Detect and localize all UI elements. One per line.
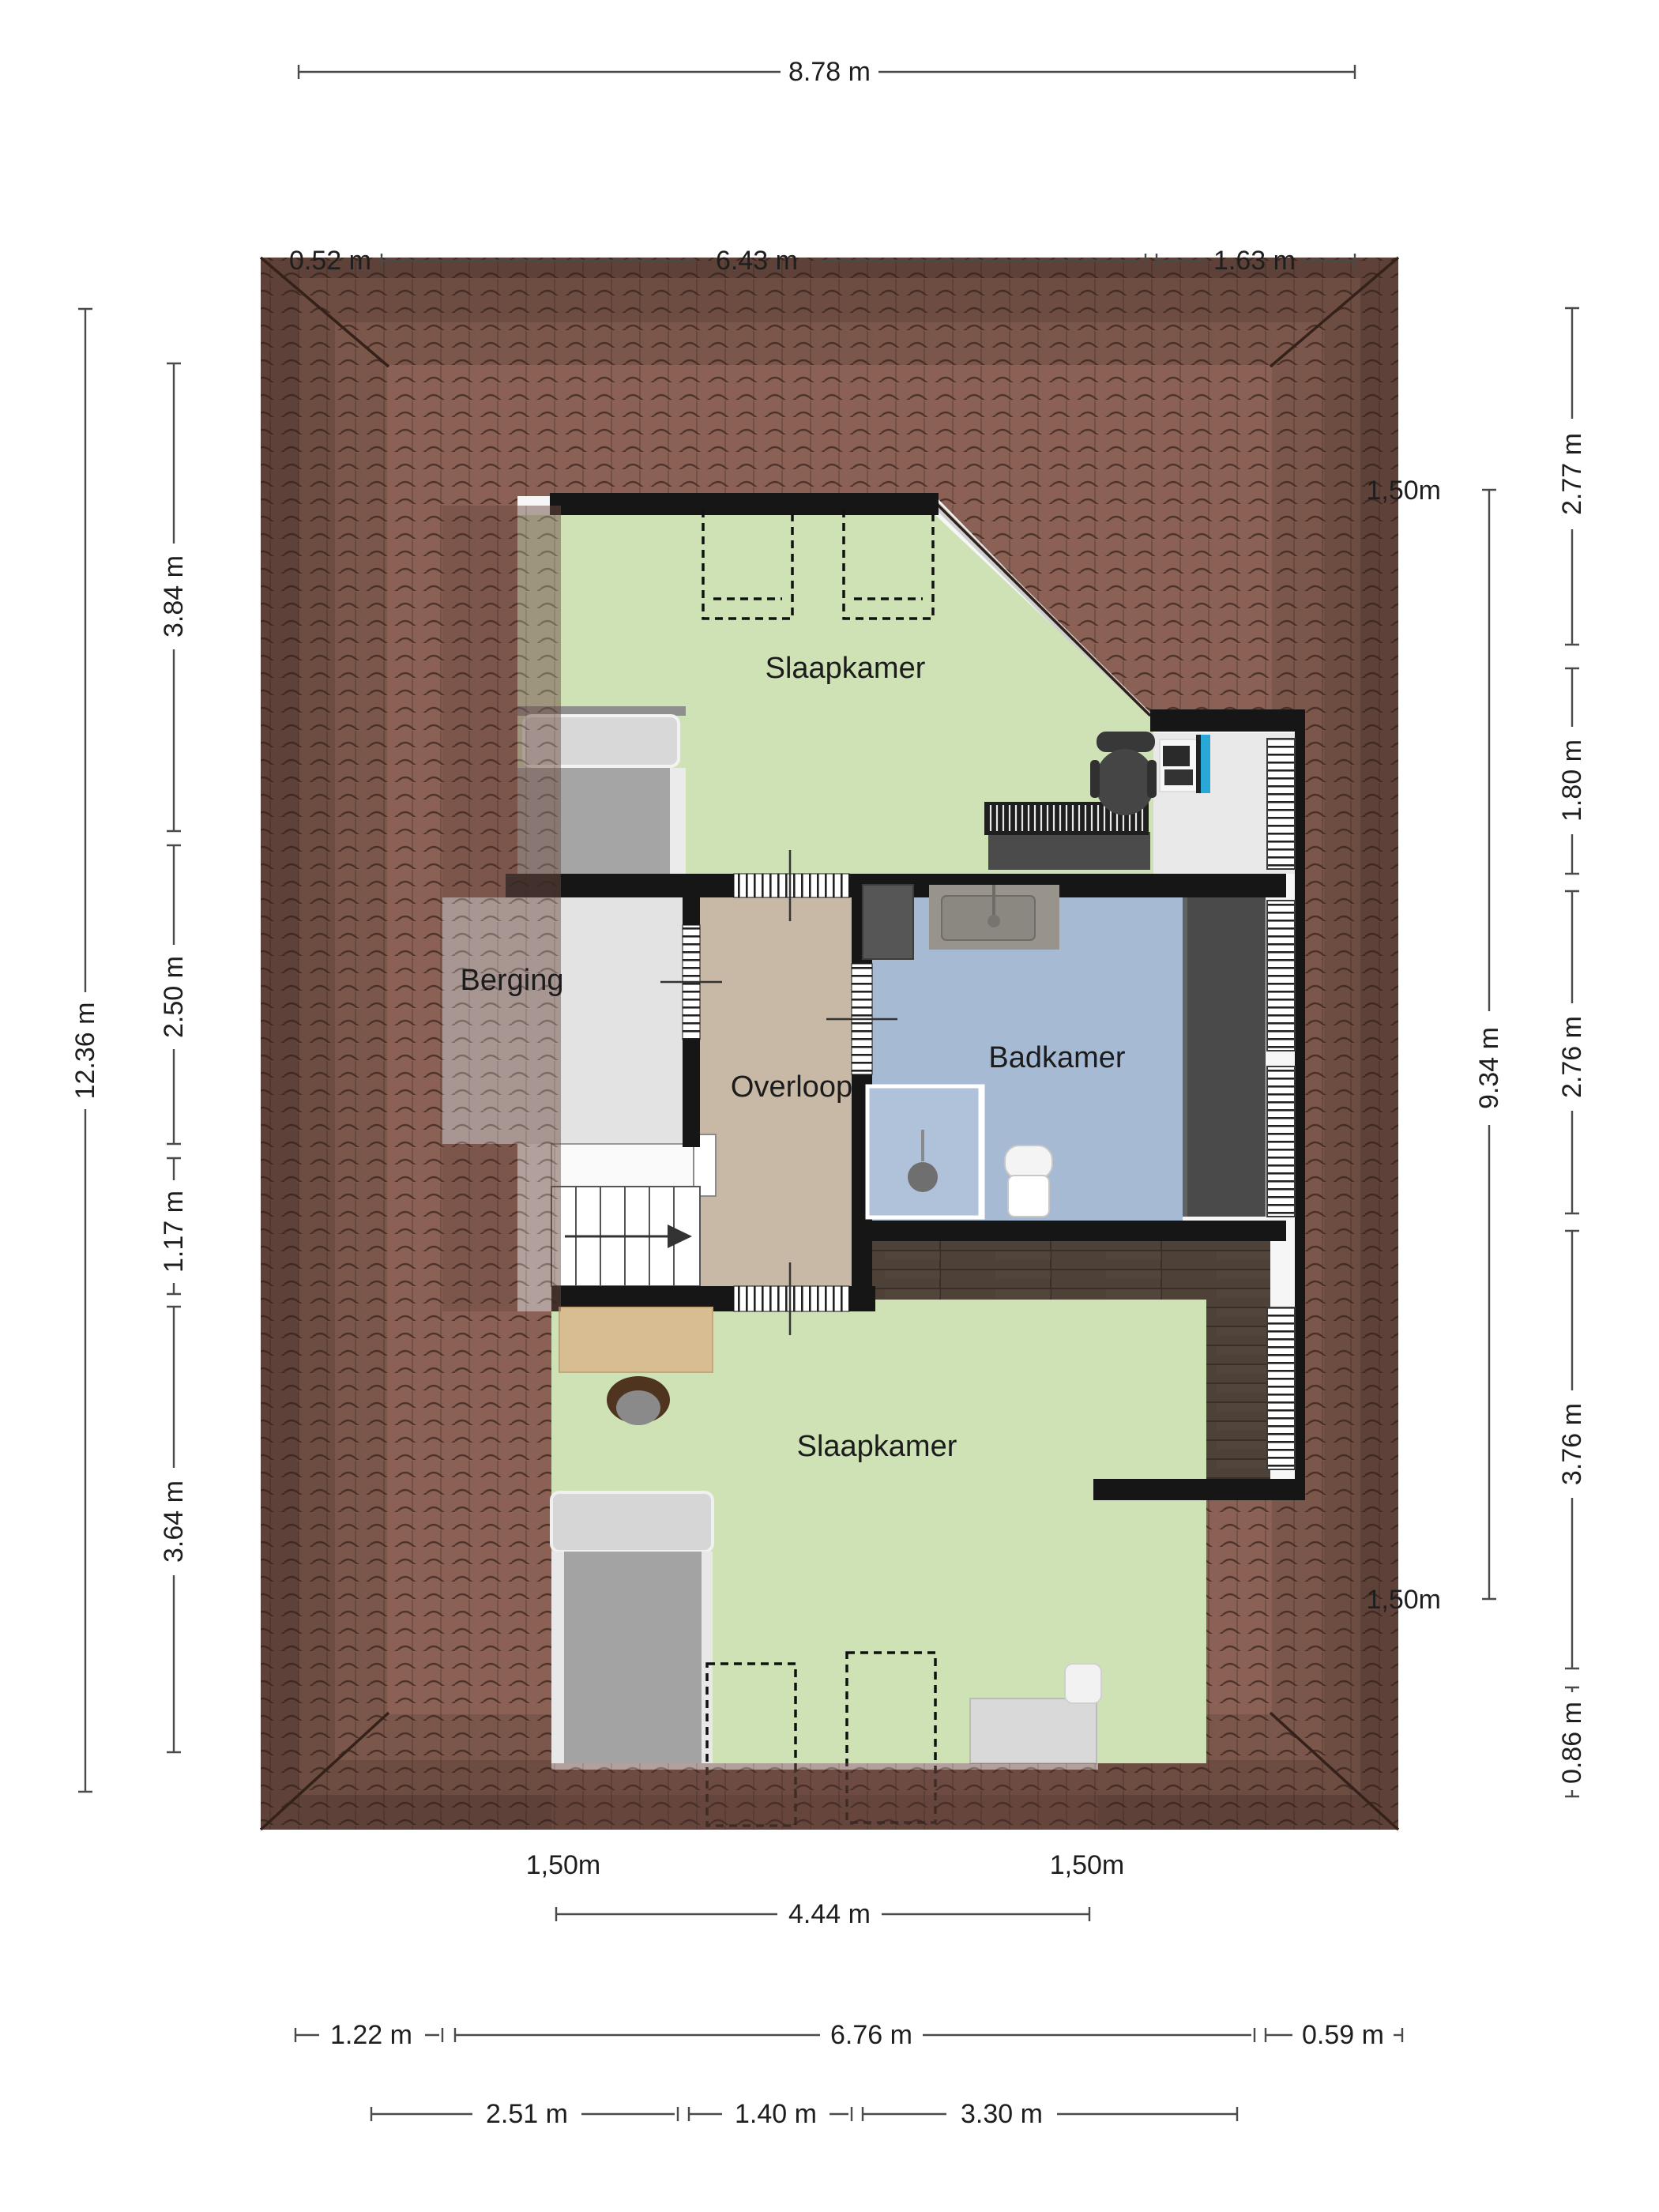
sink-basin bbox=[942, 896, 1035, 940]
monitor-stand bbox=[1196, 735, 1201, 793]
label-bedroom-top: Slaapkamer bbox=[766, 652, 926, 685]
dim-right-seg-3: 2.76 m bbox=[1557, 1016, 1587, 1098]
dim-left-seg-4: 3.64 m bbox=[159, 1480, 189, 1563]
roof-overlay-left bbox=[442, 506, 561, 1311]
dim-top-left: 0.52 m bbox=[289, 246, 371, 276]
dim-left-seg-3: 1.17 m bbox=[159, 1191, 189, 1273]
bathroom-wardrobe bbox=[1183, 897, 1266, 1217]
dim-right-inner-total: 9.34 m bbox=[1474, 1027, 1504, 1109]
dim-bottom-inner-width: 4.44 m bbox=[788, 1899, 871, 1929]
wall-top-bedroom-top bbox=[550, 493, 939, 515]
stair-landing bbox=[551, 1144, 700, 1187]
floor-plan-svg: Slaapkamer Berging Overloop Badkamer Sla… bbox=[0, 0, 1659, 2212]
dim-bottom-row3-3: 3.30 m bbox=[961, 2099, 1043, 2129]
label-bedroom-bottom: Slaapkamer bbox=[797, 1430, 957, 1463]
shower bbox=[867, 1086, 983, 1217]
label-bathroom: Badkamer bbox=[988, 1041, 1126, 1074]
wood-floor-b bbox=[1206, 1300, 1270, 1479]
cabinet-cushion bbox=[1065, 1664, 1101, 1703]
window-nook bbox=[1267, 739, 1295, 869]
low-cabinet bbox=[970, 1698, 1097, 1763]
staircase bbox=[551, 1134, 716, 1286]
sink-faucet bbox=[987, 915, 1000, 927]
wall-bathroom-bottom bbox=[863, 1221, 1286, 1241]
dim-right-seg-2: 1.80 m bbox=[1557, 739, 1587, 822]
desk-bottom bbox=[559, 1307, 713, 1372]
window-bathroom-2 bbox=[1267, 1066, 1295, 1217]
laptop bbox=[1163, 746, 1190, 766]
dim-top-total: 8.78 m bbox=[788, 57, 871, 87]
windows-right bbox=[1267, 739, 1295, 1469]
wall-nook-top bbox=[1150, 709, 1305, 732]
dim-left-seg-2: 2.50 m bbox=[159, 956, 189, 1038]
dim-bottom-row3-1: 2.51 m bbox=[486, 2099, 568, 2129]
dim-height-line-bottom-left: 1,50m bbox=[526, 1850, 601, 1880]
label-storage: Berging bbox=[461, 964, 564, 997]
bed-bottom-pillow bbox=[551, 1492, 713, 1552]
wall-bottom-right bbox=[1093, 1479, 1305, 1500]
toilet bbox=[1005, 1145, 1052, 1217]
label-landing: Overloop bbox=[731, 1070, 852, 1104]
glazing-bottom-wall bbox=[734, 1286, 849, 1311]
dim-height-line-bottom-right: 1,50m bbox=[1050, 1850, 1125, 1880]
wood-floor-a bbox=[872, 1240, 1270, 1300]
bed-bottom-fold-left bbox=[551, 1552, 564, 1763]
washer bbox=[863, 885, 913, 959]
bed-bottom-blanket bbox=[551, 1552, 713, 1763]
radiator-base bbox=[988, 832, 1150, 870]
keyboard bbox=[1164, 769, 1193, 785]
dim-left-seg-1: 3.84 m bbox=[159, 555, 189, 638]
dim-top-middle: 6.43 m bbox=[716, 246, 798, 276]
bathroom-wardrobe-edge bbox=[1183, 897, 1187, 1217]
window-wardrobe bbox=[1267, 1307, 1295, 1469]
dim-right-seg-5: 0.86 m bbox=[1557, 1702, 1587, 1784]
dim-bottom-row2-3: 0.59 m bbox=[1302, 2020, 1384, 2050]
desk-chair-seat-bottom bbox=[616, 1390, 660, 1425]
dim-right-seg-4: 3.76 m bbox=[1557, 1403, 1587, 1485]
dim-right-seg-1: 2.77 m bbox=[1557, 433, 1587, 515]
shower-head bbox=[908, 1162, 938, 1192]
dim-bottom-row2-2: 6.76 m bbox=[830, 2020, 912, 2050]
bed-top-fold bbox=[670, 768, 686, 874]
desk-setup bbox=[1160, 735, 1210, 793]
dim-bottom-row2-1: 1.22 m bbox=[330, 2020, 412, 2050]
dim-height-line-right-bottom: 1,50m bbox=[1367, 1585, 1442, 1615]
dim-top-right: 1.63 m bbox=[1213, 246, 1296, 276]
monitor-screen bbox=[1201, 735, 1210, 793]
floor-plan-page: Slaapkamer Berging Overloop Badkamer Sla… bbox=[0, 0, 1659, 2212]
dim-height-line-right-top: 1,50m bbox=[1367, 476, 1442, 506]
window-bathroom-1 bbox=[1267, 901, 1295, 1051]
wall-right bbox=[1295, 709, 1305, 1485]
dim-left-total: 12.36 m bbox=[70, 1003, 100, 1100]
dim-bottom-row3-2: 1.40 m bbox=[735, 2099, 817, 2129]
roof-overlay-bottom bbox=[551, 1763, 1098, 1830]
glazing-top-wall bbox=[734, 874, 849, 897]
